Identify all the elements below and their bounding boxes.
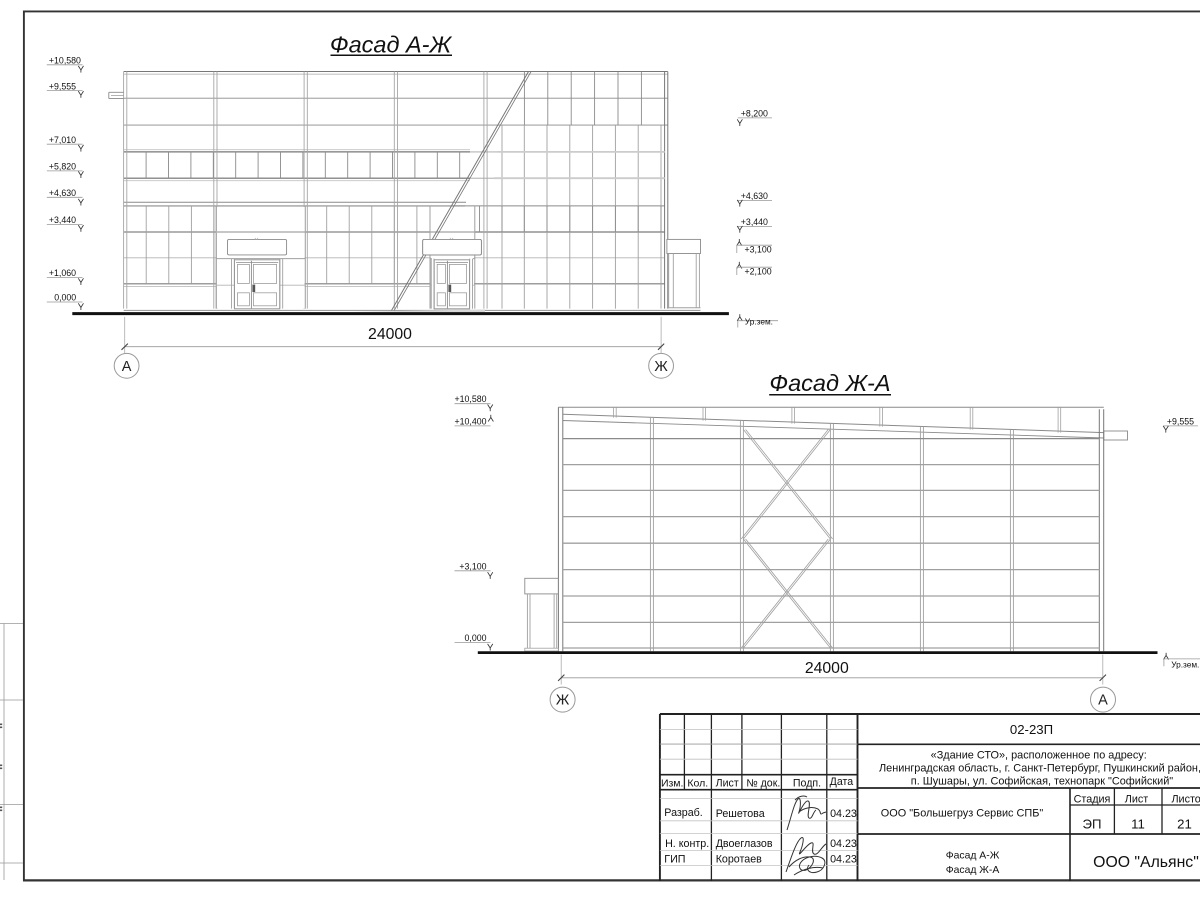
svg-text:+5,820: +5,820 [49,162,76,172]
svg-text:+9,555: +9,555 [1167,416,1194,426]
svg-text:Разраб.: Разраб. [664,807,702,819]
svg-text:+3,100: +3,100 [745,244,772,254]
svg-text:0,000: 0,000 [54,293,76,303]
svg-text:0,000: 0,000 [464,633,486,643]
svg-text:24000: 24000 [368,326,412,343]
svg-text:04.23: 04.23 [830,854,857,866]
svg-text:Двоеглазов: Двоеглазов [716,838,773,850]
svg-text:Лист: Лист [716,778,739,790]
svg-text:ООО "Большегруз Сервис СПБ": ООО "Большегруз Сервис СПБ" [881,808,1044,820]
svg-text:+3,440: +3,440 [49,215,76,225]
svg-text:№ док.: № док. [746,778,780,790]
svg-text:+3,100: +3,100 [459,561,486,571]
svg-text:ЭП: ЭП [1083,816,1102,831]
svg-text:Фасад А-Ж: Фасад А-Ж [330,32,453,58]
svg-text:Дата: Дата [830,776,854,788]
svg-text:«Здание СТО», расположенное по: «Здание СТО», расположенное по адресу: [931,749,1147,761]
svg-text:04.23: 04.23 [830,838,857,850]
svg-text:А: А [1098,693,1108,709]
svg-text:24000: 24000 [805,660,849,677]
svg-text:Фасад А-Ж: Фасад А-Ж [946,851,1000,862]
svg-text:+2,100: +2,100 [745,266,772,276]
svg-text:Ленинградская область, г. Санк: Ленинградская область, г. Санкт-Петербур… [879,762,1200,774]
svg-text:ООО "Альянс": ООО "Альянс" [1093,854,1199,871]
svg-text:Кол.: Кол. [687,777,708,789]
svg-text:02-23П: 02-23П [1010,722,1053,737]
svg-text:+3,440: +3,440 [741,217,768,227]
svg-text:Коротаев: Коротаев [716,854,762,866]
svg-text:Подп.: Подп. [793,778,821,790]
svg-text:11: 11 [1131,816,1145,831]
svg-text:+7,010: +7,010 [49,135,76,145]
svg-text:04.23: 04.23 [830,808,857,820]
svg-text:А: А [122,359,132,375]
svg-text:ГИП: ГИП [664,854,685,866]
svg-text:Листов: Листов [1171,793,1200,805]
svg-text:+4,630: +4,630 [741,191,768,201]
svg-text:Лист: Лист [1125,793,1149,805]
svg-text:Н. контр.: Н. контр. [665,838,709,850]
svg-text:Ж: Ж [556,693,570,709]
svg-text:Ур.зем.: Ур.зем. [745,317,773,327]
svg-text:+4,630: +4,630 [49,188,76,198]
svg-text:Ж: Ж [654,359,668,375]
svg-text:+8,200: +8,200 [741,108,768,118]
svg-text:Изм.: Изм. [661,777,684,789]
svg-text:+10,580: +10,580 [49,56,81,66]
svg-text:+9,555: +9,555 [49,81,76,91]
svg-text:+10,580: +10,580 [454,394,486,404]
svg-text:+10,400: +10,400 [454,416,486,426]
svg-text:Ур.зем.: Ур.зем. [1171,659,1199,669]
svg-text:Решетова: Решетова [716,808,765,820]
svg-text:21: 21 [1177,816,1192,831]
svg-text:п. Шушары, ул. Софийская, техн: п. Шушары, ул. Софийская, технопарк "Соф… [911,775,1174,787]
svg-text:Стадия: Стадия [1074,793,1111,805]
svg-text:Фасад Ж-А: Фасад Ж-А [946,865,1000,876]
svg-text:+1,060: +1,060 [49,268,76,278]
svg-text:Фасад Ж-А: Фасад Ж-А [769,370,890,396]
